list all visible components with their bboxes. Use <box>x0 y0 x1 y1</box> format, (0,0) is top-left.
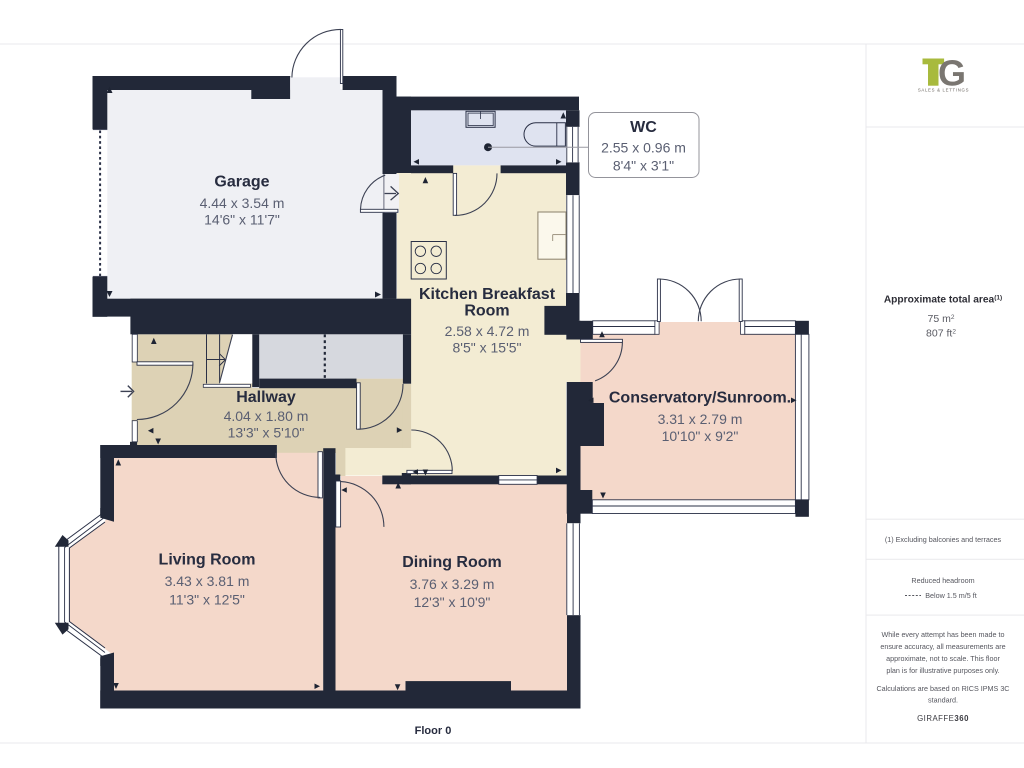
svg-text:Conservatory/Sunroom.: Conservatory/Sunroom. <box>609 390 791 407</box>
svg-text:SALES & LETTINGS: SALES & LETTINGS <box>918 88 969 93</box>
svg-text:3.43 x 3.81 m: 3.43 x 3.81 m <box>165 573 250 589</box>
svg-text:Kitchen Breakfast: Kitchen Breakfast <box>419 286 556 303</box>
svg-text:8'4" x 3'1": 8'4" x 3'1" <box>613 158 674 174</box>
svg-text:Calculations are based on RICS: Calculations are based on RICS IPMS 3C <box>876 684 1009 693</box>
svg-text:Reduced headroom: Reduced headroom <box>911 576 974 585</box>
svg-text:2.55 x 0.96 m: 2.55 x 0.96 m <box>601 140 686 156</box>
svg-text:4.44 x 3.54 m: 4.44 x 3.54 m <box>200 195 285 211</box>
svg-text:14'6" x 11'7": 14'6" x 11'7" <box>204 212 280 228</box>
svg-text:(1) Excluding balconies and te: (1) Excluding balconies and terraces <box>885 535 1002 544</box>
svg-text:Living Room: Living Room <box>159 552 256 569</box>
svg-text:11'3" x 12'5": 11'3" x 12'5" <box>169 592 245 608</box>
svg-text:Floor 0: Floor 0 <box>415 725 452 737</box>
svg-text:While every attempt has been m: While every attempt has been made to <box>881 630 1004 639</box>
svg-text:4.04 x 1.80 m: 4.04 x 1.80 m <box>224 408 309 424</box>
svg-text:Garage: Garage <box>214 174 269 191</box>
svg-text:3.31 x 2.79 m: 3.31 x 2.79 m <box>658 411 743 427</box>
svg-text:2.58 x 4.72 m: 2.58 x 4.72 m <box>445 323 530 339</box>
svg-text:approximate, not to scale. Thi: approximate, not to scale. This floor <box>886 654 1000 663</box>
svg-text:Hallway: Hallway <box>236 389 296 406</box>
svg-text:8'5" x 15'5": 8'5" x 15'5" <box>453 340 522 356</box>
svg-text:10'10" x 9'2": 10'10" x 9'2" <box>662 428 739 444</box>
svg-text:Below 1.5 m/5 ft: Below 1.5 m/5 ft <box>925 591 977 600</box>
svg-text:GIRAFFE360: GIRAFFE360 <box>917 714 969 723</box>
svg-text:807 ft2: 807 ft2 <box>926 328 956 340</box>
svg-text:plan is for illustrative purpo: plan is for illustrative purposes only. <box>886 666 999 675</box>
svg-text:13'3" x 5'10": 13'3" x 5'10" <box>228 425 305 441</box>
svg-text:3.76 x 3.29 m: 3.76 x 3.29 m <box>410 576 495 592</box>
svg-text:Room: Room <box>464 303 509 320</box>
svg-text:12'3" x 10'9": 12'3" x 10'9" <box>414 594 491 610</box>
svg-text:Dining Room: Dining Room <box>402 554 502 571</box>
svg-text:standard.: standard. <box>928 696 958 705</box>
svg-text:WC: WC <box>630 119 657 136</box>
svg-text:75 m2: 75 m2 <box>928 313 955 325</box>
svg-text:Approximate total area(1): Approximate total area(1) <box>884 295 1002 306</box>
svg-text:ensure accuracy, all measureme: ensure accuracy, all measurements are <box>880 642 1005 651</box>
